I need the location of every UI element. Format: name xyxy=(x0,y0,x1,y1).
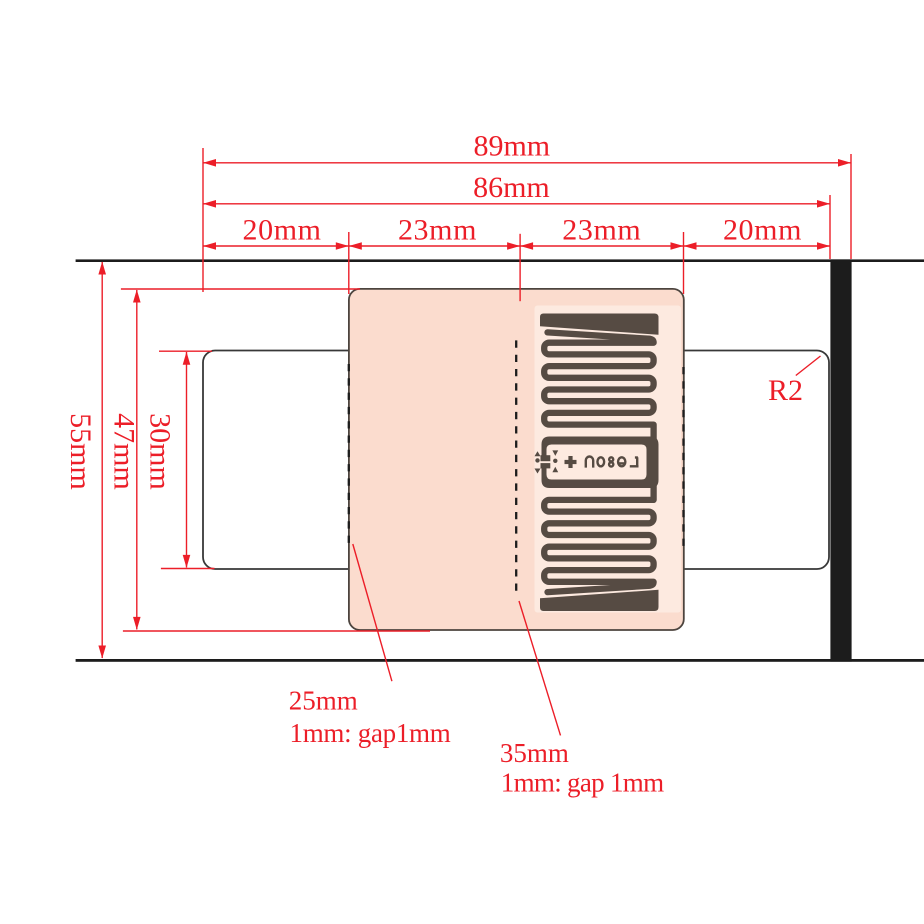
svg-text:1mm: gap1mm: 1mm: gap1mm xyxy=(290,718,451,748)
svg-text:23mm: 23mm xyxy=(398,214,477,247)
svg-text:55mm: 55mm xyxy=(64,413,97,490)
svg-text:47mm: 47mm xyxy=(107,413,140,490)
svg-text:23mm: 23mm xyxy=(562,214,641,247)
svg-text:35mm: 35mm xyxy=(500,738,569,768)
svg-text:20mm: 20mm xyxy=(723,214,802,247)
svg-text:20mm: 20mm xyxy=(243,214,322,247)
svg-text:R2: R2 xyxy=(768,374,803,407)
svg-text:86mm: 86mm xyxy=(473,171,550,204)
svg-text:1mm: gap 1mm: 1mm: gap 1mm xyxy=(501,768,664,798)
svg-text:30mm: 30mm xyxy=(144,413,177,490)
svg-text:89mm: 89mm xyxy=(473,129,550,162)
svg-text:25mm: 25mm xyxy=(289,685,358,715)
